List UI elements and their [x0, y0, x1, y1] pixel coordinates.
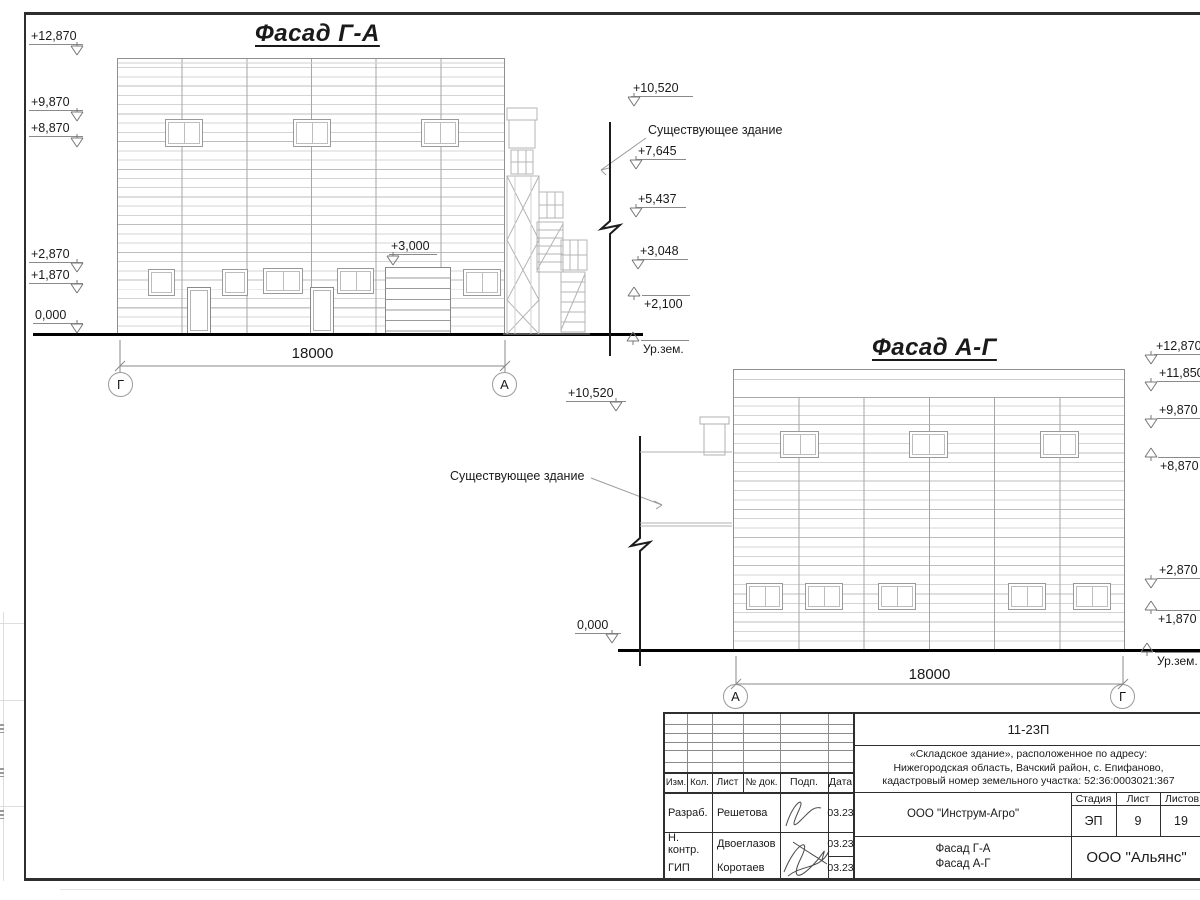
- col-podp: Подп.: [780, 772, 828, 792]
- window: [1040, 431, 1079, 458]
- row-role: Разраб.: [668, 793, 712, 832]
- facade2-title: Фасад А-Г: [872, 334, 997, 362]
- elevation-mark: +1,870: [1156, 610, 1200, 626]
- organization: ООО "Инструм-Агро": [855, 792, 1071, 836]
- elevation-mark: +2,870: [29, 247, 83, 263]
- axis-bubble-a: А: [723, 684, 748, 709]
- sheets-col: Листов: [1165, 792, 1200, 805]
- ground-level-label: Ур.зем.: [641, 340, 689, 356]
- window: [463, 269, 501, 296]
- window: [421, 119, 459, 147]
- door: [187, 287, 211, 334]
- sheets-total: 19: [1160, 805, 1200, 836]
- window: [337, 268, 374, 294]
- adjacent-sheet-line: [0, 700, 24, 701]
- elevation-mark: +10,520: [631, 81, 693, 97]
- elevation-mark: +8,870: [1158, 457, 1200, 473]
- elevation-mark: +2,870: [1157, 563, 1200, 579]
- elevation-mark: +2,100: [642, 295, 690, 311]
- adjacent-sheet-text-fragment: [0, 768, 4, 777]
- window: [293, 119, 331, 147]
- project-address: «Складское здание», расположенное по адр…: [855, 745, 1200, 792]
- facade1-title: Фасад Г-А: [255, 20, 380, 48]
- window: [263, 268, 303, 294]
- elevation-mark: +7,645: [636, 144, 686, 160]
- sheet-shadow: [60, 889, 1200, 890]
- elevation-mark: 0,000: [33, 308, 83, 324]
- axis-bubble-g: Г: [1110, 684, 1135, 709]
- elevation-mark: +3,048: [638, 244, 688, 260]
- ground-line: [618, 649, 1200, 652]
- row-date: 03.23: [828, 856, 853, 880]
- row-date: 03.23: [828, 793, 853, 832]
- window: [1008, 583, 1046, 610]
- axis-bubble-g: Г: [108, 372, 133, 397]
- elevation-mark: 0,000: [575, 618, 621, 634]
- elevation-mark-gate: +3,000: [389, 239, 437, 255]
- row-name: Решетова: [717, 793, 780, 832]
- parapet-band: [734, 370, 1124, 398]
- col-izm: Изм.: [665, 772, 687, 792]
- window: [1073, 583, 1111, 610]
- elevation-mark: +1,870: [29, 268, 83, 284]
- elevation-mark: +12,870: [1154, 339, 1200, 355]
- dimension-18000: 18000: [120, 345, 505, 362]
- ground-level-label: Ур.зем.: [1155, 652, 1200, 668]
- row-role: Н. контр.: [668, 832, 712, 856]
- col-list: Лист: [712, 772, 743, 792]
- elevation-mark: +10,520: [566, 386, 626, 402]
- drawing-sheet: { "facade1": { "title": "Фасад Г-А", "el…: [0, 0, 1200, 900]
- elevation-mark: +9,870: [1157, 403, 1200, 419]
- elevation-mark: +9,870: [29, 95, 83, 111]
- axis-bubble-a: А: [492, 372, 517, 397]
- adjacent-sheet-text-fragment: [0, 724, 4, 733]
- company: ООО "Альянс": [1071, 836, 1200, 878]
- elevation-mark: +11,850: [1157, 366, 1200, 382]
- existing-building-label: Существующее здание: [450, 469, 584, 483]
- sectional-gate: [385, 267, 451, 334]
- sheet-col: Лист: [1116, 792, 1160, 805]
- row-name: Коротаев: [717, 856, 780, 880]
- window: [878, 583, 916, 610]
- door: [310, 287, 334, 334]
- row-date: 03.23: [828, 832, 853, 856]
- adjacent-sheet-line: [0, 806, 24, 807]
- row-role: ГИП: [668, 856, 712, 880]
- dimension-18000: 18000: [736, 666, 1123, 683]
- window: [222, 269, 248, 296]
- stage-value: ЭП: [1071, 805, 1116, 836]
- doc-number: 11-23П: [855, 714, 1200, 745]
- window: [909, 431, 948, 458]
- row-name: Двоеглазов: [717, 832, 780, 856]
- facade2-elevation-view: [733, 369, 1125, 650]
- drawing-title: Фасад Г-А Фасад А-Г: [855, 836, 1071, 878]
- window: [148, 269, 175, 296]
- sheet-number: 9: [1116, 805, 1160, 836]
- elevation-mark: +12,870: [29, 29, 83, 45]
- col-data: Дата: [828, 772, 853, 792]
- adjacent-sheet-line: [0, 623, 24, 624]
- window: [805, 583, 843, 610]
- col-ndok: № док.: [743, 772, 780, 792]
- window: [165, 119, 203, 147]
- elevation-mark: +5,437: [636, 192, 686, 208]
- col-kol: Кол.: [687, 772, 712, 792]
- adjacent-sheet-text-fragment: [0, 810, 4, 819]
- window: [746, 583, 783, 610]
- window: [780, 431, 819, 458]
- adjacent-sheet-edge: [3, 612, 4, 881]
- existing-building-label: Существующее здание: [648, 123, 782, 137]
- stage-col: Стадия: [1071, 792, 1116, 805]
- elevation-mark: +8,870: [29, 121, 83, 137]
- title-block: Изм. Кол. Лист № док. Подп. Дата Разраб.…: [663, 712, 1200, 880]
- ground-line: [33, 333, 643, 336]
